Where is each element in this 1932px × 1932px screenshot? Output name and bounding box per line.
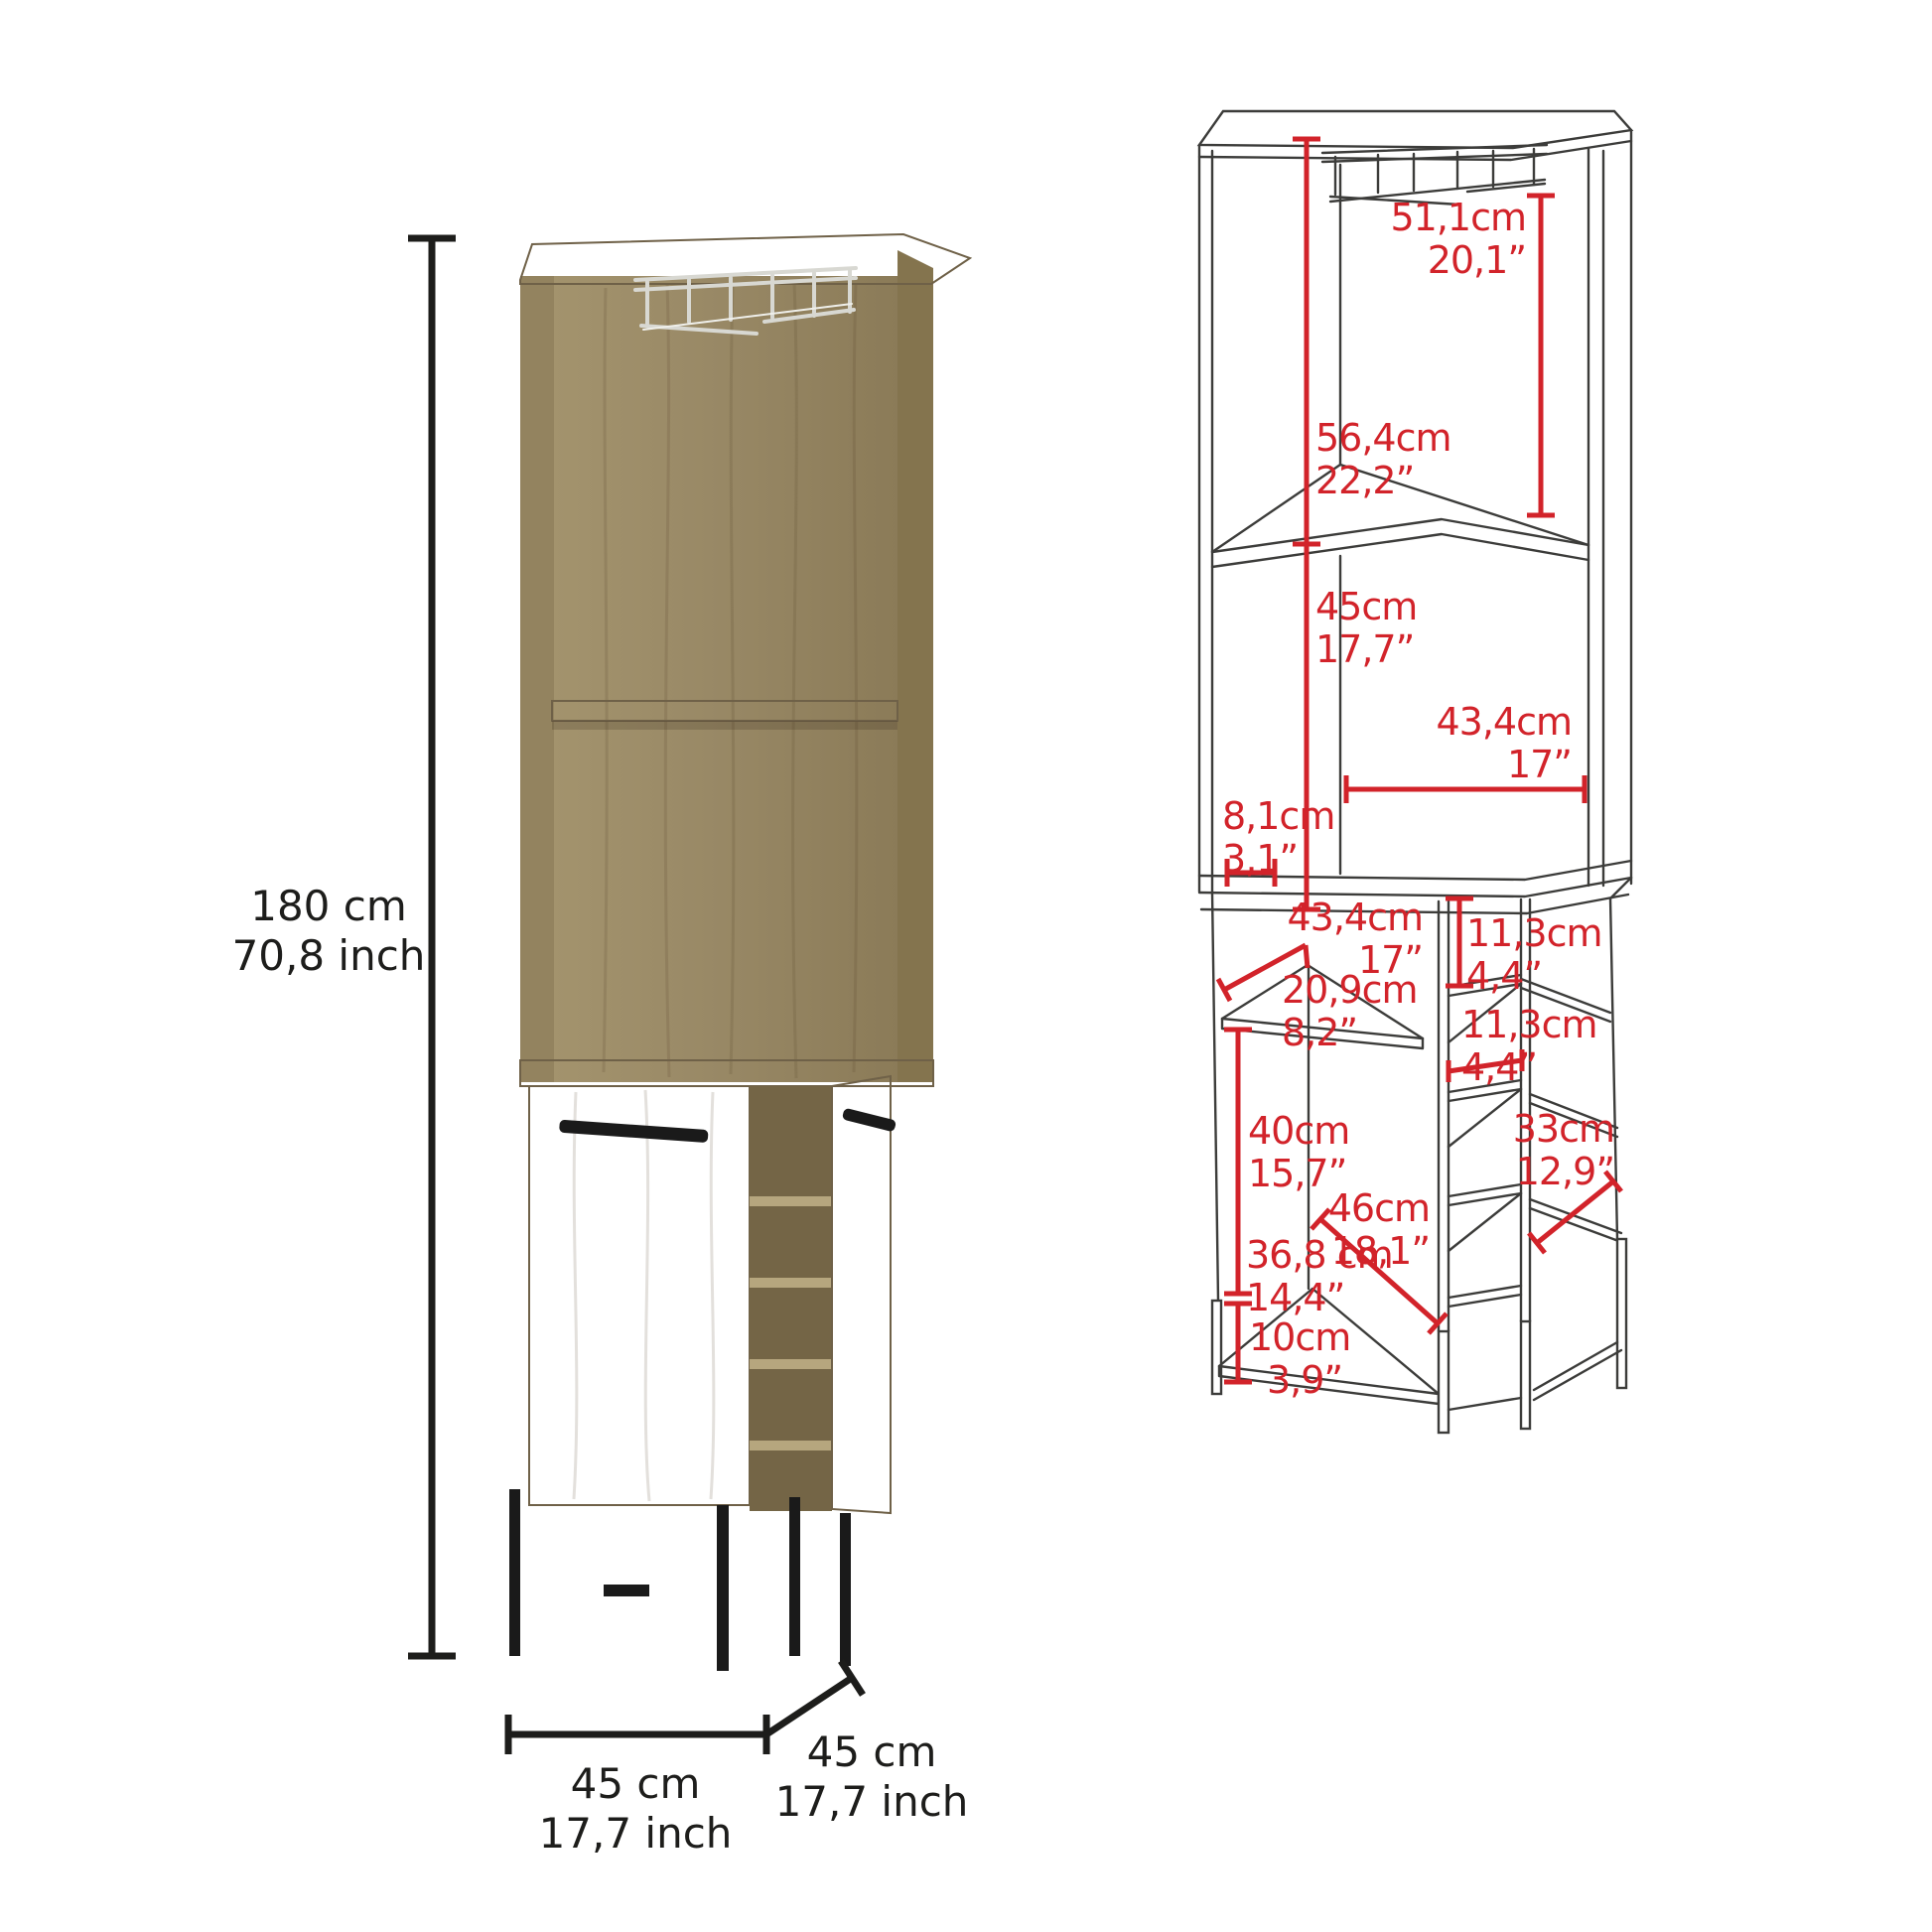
dim-cm: 11,3cm [1461, 1004, 1630, 1046]
hutch-upper-section [520, 234, 970, 1082]
dim-cm: 43,4cm [1390, 701, 1572, 744]
dim-cm: 36,8 cm [1246, 1234, 1464, 1277]
dim-leg-height-label: 10cm 3,9” [1249, 1316, 1408, 1402]
dim-cm: 45cm [1315, 586, 1514, 628]
dim-base-shelf-width-label: 36,8 cm 14,4” [1246, 1234, 1464, 1319]
drawing-top-face [1199, 111, 1631, 148]
dim-side-panel-depth-label: 8,1cm 3,1” [1222, 795, 1381, 881]
depth-dimension-label: 45 cm 17,7 inch [753, 1727, 991, 1827]
right-corner-panel [897, 250, 933, 1082]
height-dimension-label: 180 cm 70,8 inch [205, 882, 453, 981]
cabinet-render [408, 234, 970, 1754]
dim-inch: 22,2” [1315, 460, 1514, 502]
depth-cm: 45 cm [753, 1727, 991, 1777]
width-dimension-label: 45 cm 17,7 inch [496, 1759, 774, 1859]
dim-inch: 17” [1390, 744, 1572, 786]
depth-dimension-line [766, 1661, 863, 1734]
depth-inch: 17,7 inch [753, 1777, 991, 1827]
dim-inch: 12,9” [1459, 1151, 1614, 1193]
dim-lower-opening-height-label: 40cm 15,7” [1248, 1110, 1427, 1195]
metal-legs-render [509, 1489, 851, 1671]
dim-inch: 8,2” [1282, 1012, 1480, 1054]
dim-upper-opening-height-label: 56,4cm 22,2” [1315, 417, 1514, 502]
dim-cm: 46cm [1271, 1187, 1430, 1230]
left-door-handle [559, 1120, 709, 1143]
dim-cm: 51,1cm [1330, 197, 1526, 239]
dim-inch: 14,4” [1246, 1277, 1464, 1319]
dim-cm: 40cm [1248, 1110, 1427, 1153]
dim-corner-shelf-side-label: 20,9cm 8,2” [1282, 969, 1480, 1054]
dim-cm: 33cm [1459, 1108, 1614, 1151]
left-door [529, 1086, 750, 1505]
dim-inch: 4,4” [1466, 955, 1635, 998]
width-cm: 45 cm [496, 1759, 774, 1809]
drawing-leg-center [1439, 1331, 1449, 1433]
dim-upper-width-label: 43,4cm 17” [1390, 701, 1572, 786]
drawing-leg-left [1212, 1301, 1221, 1394]
drawing-leg-center-right [1521, 1321, 1530, 1429]
dim-glass-rack-height-label: 51,1cm 20,1” [1330, 197, 1526, 282]
base-lower-section [509, 1060, 933, 1671]
product-dimension-diagram: 180 cm 70,8 inch 45 cm 17,7 inch 45 cm 1… [0, 0, 1932, 1932]
dim-side-shelf-width-label: 33cm 12,9” [1459, 1108, 1614, 1193]
right-door [832, 1076, 891, 1513]
dim-inch: 3,1” [1222, 838, 1381, 881]
dim-inch: 20,1” [1330, 239, 1526, 282]
height-cm: 180 cm [205, 882, 453, 931]
dim-inch: 3,9” [1249, 1359, 1408, 1402]
drawing-leg-right [1617, 1239, 1626, 1388]
dim-cm: 20,9cm [1282, 969, 1480, 1012]
right-door-handle [842, 1108, 897, 1133]
dim-inch: 17,7” [1315, 628, 1514, 671]
left-side-panel [520, 276, 554, 1082]
dim-cm: 10cm [1249, 1316, 1408, 1359]
shelf-shadow [552, 721, 897, 730]
dim-cm: 56,4cm [1315, 417, 1514, 460]
height-inch: 70,8 inch [205, 931, 453, 981]
dim-cubby-height-top-label: 11,3cm 4,4” [1466, 912, 1635, 998]
width-dimension-line [508, 1715, 766, 1754]
dim-cubby-height-mid-label: 11,3cm 4,4” [1461, 1004, 1630, 1089]
dim-cm: 8,1cm [1222, 795, 1381, 838]
dim-cm: 11,3cm [1466, 912, 1635, 955]
width-inch: 17,7 inch [496, 1809, 774, 1859]
dim-middle-opening-height-label: 45cm 17,7” [1315, 586, 1514, 671]
dim-cm: 43,4cm [1271, 897, 1423, 939]
dim-inch: 4,4” [1461, 1046, 1630, 1089]
